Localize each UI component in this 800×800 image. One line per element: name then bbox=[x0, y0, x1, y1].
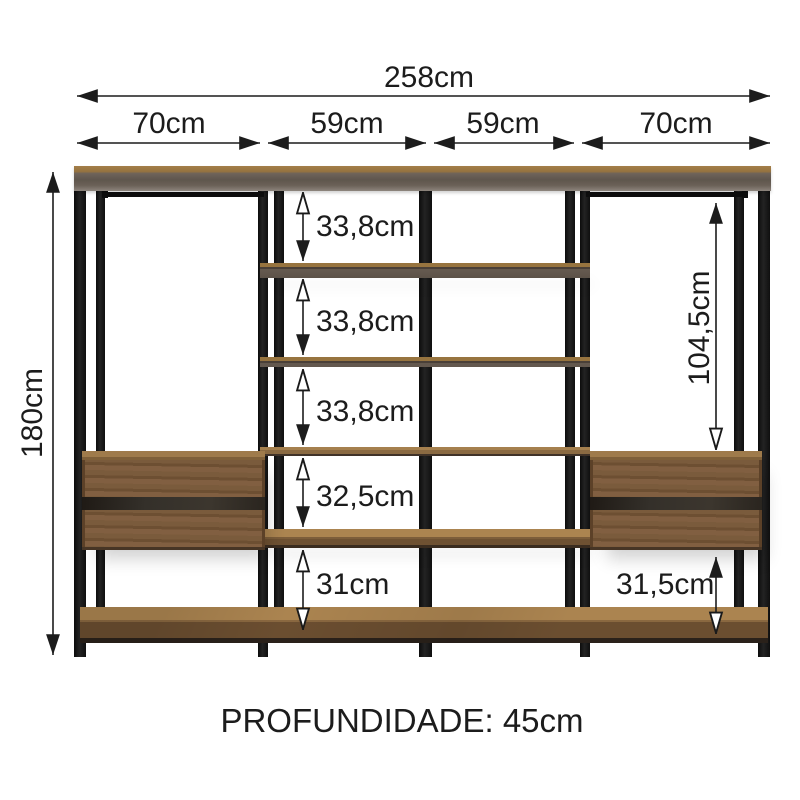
dim-label-section-width-4: 70cm bbox=[616, 107, 736, 141]
dim-label-hanging-height: 104,5cm bbox=[683, 263, 717, 393]
furniture-dimension-diagram: 258cm 70cm 59cm 59cm 70cm 180cm 33,8cm 3… bbox=[0, 0, 800, 800]
dim-label-shelf-gap-5: 31cm bbox=[316, 568, 389, 602]
dim-label-section-width-2: 59cm bbox=[287, 107, 407, 141]
dim-label-total-height: 180cm bbox=[16, 353, 50, 473]
dim-label-bottom-right-gap: 31,5cm bbox=[616, 568, 714, 602]
dim-label-shelf-gap-2: 33,8cm bbox=[316, 305, 414, 339]
dim-label-shelf-gap-1: 33,8cm bbox=[316, 210, 414, 244]
dim-label-total-width: 258cm bbox=[369, 61, 489, 95]
dim-label-shelf-gap-3: 33,8cm bbox=[316, 395, 414, 429]
depth-note: PROFUNDIDADE: 45cm bbox=[202, 703, 602, 739]
dim-label-shelf-gap-4: 32,5cm bbox=[316, 480, 414, 514]
dim-label-section-width-3: 59cm bbox=[443, 107, 563, 141]
dim-label-section-width-1: 70cm bbox=[109, 107, 229, 141]
